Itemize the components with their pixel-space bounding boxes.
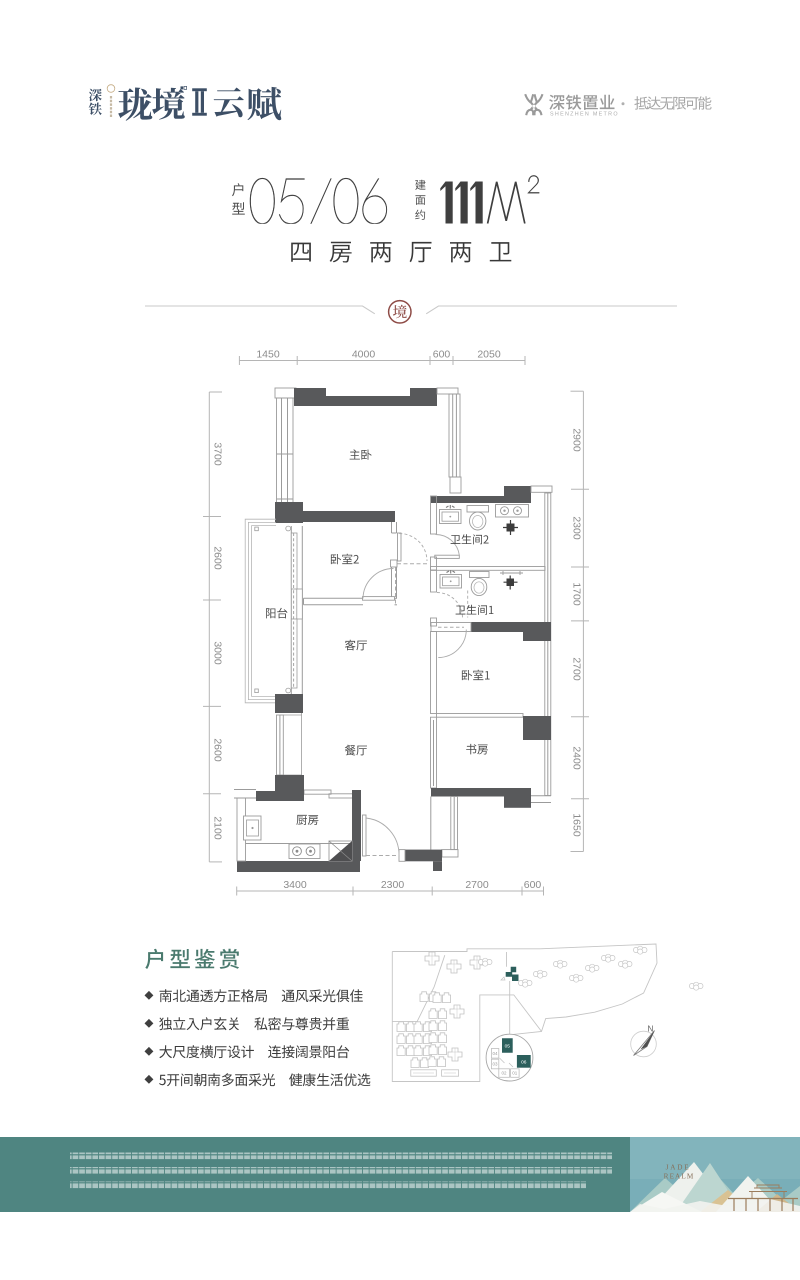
svg-text:1450: 1450 — [256, 349, 280, 361]
svg-text:2300: 2300 — [381, 879, 405, 891]
svg-text:SHENZHEN METRO: SHENZHEN METRO — [550, 112, 619, 118]
svg-text:4000: 4000 — [352, 349, 376, 361]
svg-text:03: 03 — [492, 1062, 498, 1067]
svg-text:1650: 1650 — [571, 813, 583, 837]
svg-text:3700: 3700 — [212, 442, 224, 466]
svg-text:05: 05 — [505, 1044, 511, 1050]
svg-text:2700: 2700 — [465, 879, 489, 891]
svg-text:3400: 3400 — [283, 879, 307, 891]
svg-text:2900: 2900 — [571, 428, 583, 452]
svg-text:2050: 2050 — [477, 349, 501, 361]
svg-text:2300: 2300 — [571, 516, 583, 540]
svg-text:1700: 1700 — [571, 582, 583, 606]
svg-text:2400: 2400 — [571, 746, 583, 770]
svg-text:2700: 2700 — [571, 657, 583, 681]
svg-text:06: 06 — [521, 1060, 527, 1066]
svg-text:2600: 2600 — [212, 546, 224, 570]
svg-text:600: 600 — [524, 879, 542, 891]
svg-text:2100: 2100 — [212, 816, 224, 840]
svg-text:JADE: JADE — [666, 1164, 691, 1172]
svg-text:01: 01 — [512, 1071, 518, 1076]
svg-text:04: 04 — [492, 1051, 498, 1056]
svg-text:REALM: REALM — [664, 1173, 695, 1181]
svg-text:3000: 3000 — [212, 641, 224, 665]
svg-text:2600: 2600 — [212, 738, 224, 762]
svg-text:600: 600 — [433, 349, 451, 361]
svg-text:02: 02 — [501, 1071, 507, 1076]
